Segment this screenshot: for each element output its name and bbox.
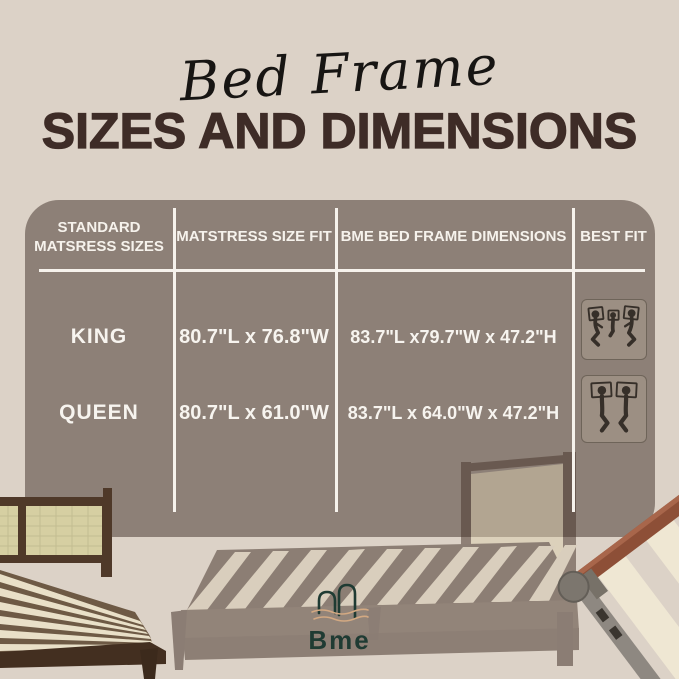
header-mattress-size-fit: MATSTRESS SIZE FIT (173, 208, 335, 266)
bed-frame-closeup-illustration (528, 494, 679, 679)
header-standard-mattress-sizes: STANDARD MATSRESS SIZES (25, 208, 173, 266)
best-fit-queen-box (581, 375, 647, 443)
bed-frame-infographic: Bed Frame SIZES AND DIMENSIONS (0, 0, 679, 679)
couple-two-sleepers-icon (586, 380, 642, 438)
header-underline (39, 269, 645, 272)
best-fit-king-box (581, 299, 647, 360)
header-best-fit: BEST FIT (572, 208, 655, 266)
row-queen-frame-dimensions: 83.7"L x 64.0"W x 47.2"H (335, 388, 572, 438)
row-king-mattress-fit: 80.7"L x 76.8"W (173, 312, 335, 362)
family-three-sleepers-icon (586, 304, 642, 356)
page-title: SIZES AND DIMENSIONS (0, 102, 679, 160)
double-arch-book-icon (310, 580, 370, 624)
rattan-bed-corner-illustration (0, 470, 232, 679)
row-king-frame-dimensions: 83.7"L x79.7"W x 47.2"H (335, 312, 572, 362)
header-bme-bed-frame-dimensions: BME BED FRAME DIMENSIONS (335, 208, 572, 266)
row-queen-mattress-fit: 80.7"L x 61.0"W (173, 388, 335, 438)
row-king-size: KING (25, 312, 173, 362)
row-queen-size: QUEEN (25, 388, 173, 438)
